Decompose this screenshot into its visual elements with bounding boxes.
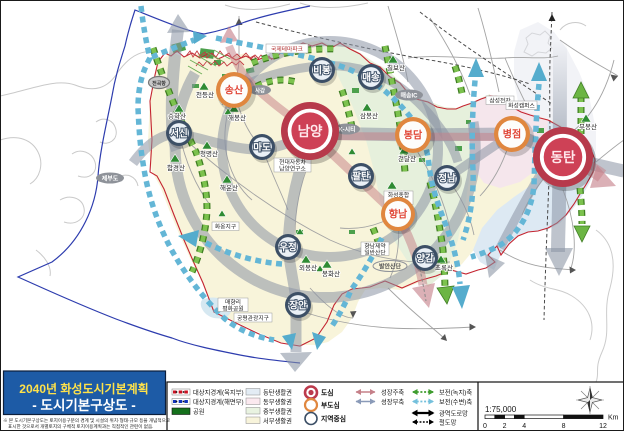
svg-text:보전(수변)축: 보전(수변)축 [439, 397, 472, 406]
svg-text:송산: 송산 [225, 84, 244, 97]
svg-text:대상지경계(해면부): 대상지경계(해면부) [193, 397, 244, 406]
svg-text:칠보산: 칠보산 [387, 63, 405, 72]
svg-text:사강: 사강 [255, 87, 265, 95]
svg-text:0: 0 [483, 423, 487, 430]
svg-text:함경산: 함경산 [167, 163, 185, 172]
svg-text:중부생활권: 중부생활권 [263, 407, 292, 416]
svg-text:2040년 화성도시기본계획: 2040년 화성도시기본계획 [19, 381, 148, 396]
svg-text:화옹지구: 화옹지구 [215, 223, 237, 231]
svg-text:12: 12 [599, 423, 607, 430]
svg-text:대상지경계(육지부): 대상지경계(육지부) [193, 388, 244, 397]
svg-text:부도심: 부도심 [321, 401, 340, 410]
svg-text:표시한 것으로서 개별토지의 구체적 토지이용계획과는 직접: 표시한 것으로서 개별토지의 구체적 토지이용계획과는 직접적인 관련이 없음. [8, 423, 153, 430]
svg-text:전곡항: 전곡항 [152, 80, 166, 87]
svg-text:정남: 정남 [438, 173, 456, 185]
svg-text:궁평관광지구: 궁평관광지구 [237, 314, 270, 322]
svg-text:마도: 마도 [253, 142, 271, 154]
svg-text:보전(녹지)축: 보전(녹지)축 [439, 388, 472, 397]
svg-text:비봉: 비봉 [313, 65, 331, 77]
svg-text:팔탄: 팔탄 [352, 171, 370, 183]
svg-text:평화공원: 평화공원 [222, 305, 243, 313]
svg-text:양감: 양감 [416, 253, 434, 265]
svg-text:지역중심: 지역중심 [321, 414, 346, 423]
svg-text:서부생활권: 서부생활권 [263, 416, 292, 425]
svg-text:우정: 우정 [279, 242, 296, 254]
svg-text:※ 본 도시기본구상도는 토지이용구분의 경계 및 시설의: ※ 본 도시기본구상도는 토지이용구분의 경계 및 시설의 위치·형태·규모 등… [3, 417, 170, 424]
svg-text:향남제약: 향남제약 [364, 242, 386, 250]
svg-text:봉담: 봉담 [404, 129, 423, 142]
svg-text:4: 4 [522, 423, 526, 430]
svg-text:장안: 장안 [289, 300, 307, 312]
svg-text:제부도: 제부도 [102, 175, 119, 183]
svg-text:병점: 병점 [503, 128, 521, 141]
svg-text:외봉산: 외봉산 [299, 263, 317, 272]
svg-text:8: 8 [562, 423, 566, 430]
svg-text:철도망: 철도망 [439, 418, 457, 427]
svg-text:동탄: 동탄 [551, 149, 576, 165]
svg-text:천등산: 천등산 [196, 90, 214, 99]
svg-text:남양: 남양 [298, 123, 323, 139]
svg-text:매송: 매송 [362, 72, 380, 84]
svg-text:승학산: 승학산 [168, 112, 186, 121]
svg-text:광역도로망: 광역도로망 [439, 409, 468, 418]
svg-text:동부생활권: 동부생활권 [263, 397, 292, 406]
svg-text:동탄생활권: 동탄생활권 [263, 388, 292, 397]
svg-text:향남: 향남 [389, 208, 408, 221]
svg-text:Km: Km [608, 415, 619, 422]
svg-text:성장주축: 성장주축 [381, 388, 404, 397]
svg-text:- 도시기본구상도 -: - 도시기본구상도 - [32, 398, 135, 413]
svg-text:도심: 도심 [321, 388, 334, 397]
svg-text:일반산단: 일반산단 [364, 249, 386, 257]
svg-text:봉화산: 봉화산 [322, 269, 340, 278]
svg-text:무봉산: 무봉산 [579, 122, 597, 131]
svg-text:해봉산: 해봉산 [228, 113, 246, 122]
svg-text:삼봉산: 삼봉산 [360, 111, 378, 120]
svg-text:남양연구소: 남양연구소 [279, 165, 306, 173]
svg-text:매송IC: 매송IC [400, 92, 418, 100]
svg-text:성장부축: 성장부축 [381, 397, 404, 406]
svg-text:서신: 서신 [170, 128, 187, 140]
svg-text:2: 2 [503, 423, 507, 430]
svg-text:공원: 공원 [193, 407, 205, 416]
svg-text:매향리: 매향리 [225, 298, 241, 306]
svg-text:청명산: 청명산 [200, 149, 218, 158]
svg-text:국제테마파크: 국제테마파크 [271, 45, 304, 53]
svg-text:발안산단: 발안산단 [379, 263, 402, 271]
svg-text:화성캠퍼스: 화성캠퍼스 [508, 102, 535, 110]
svg-text:해운산: 해운산 [220, 183, 238, 192]
svg-text:1:75,000: 1:75,000 [485, 405, 517, 414]
